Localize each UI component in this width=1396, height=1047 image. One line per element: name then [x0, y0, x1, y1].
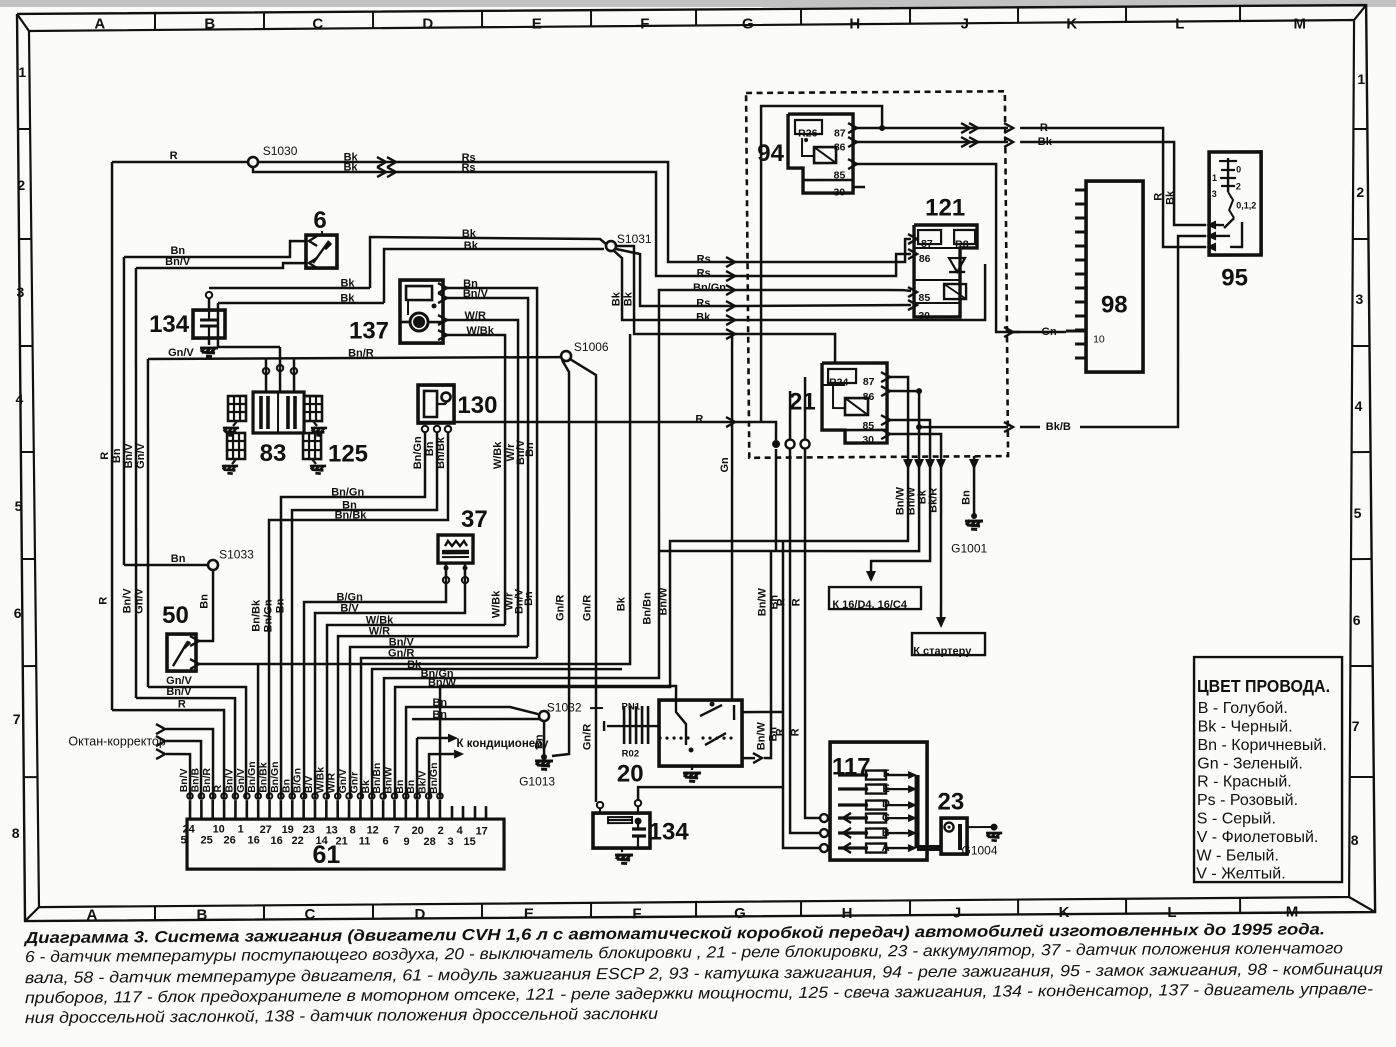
svg-text:Bk: Bk — [696, 312, 711, 324]
svg-text:16: 16 — [270, 835, 282, 847]
svg-text:B: B — [882, 827, 890, 839]
svg-text:S1032: S1032 — [547, 701, 582, 715]
svg-text:Bn/W: Bn/W — [428, 677, 457, 689]
svg-text:A: A — [94, 16, 105, 33]
svg-text:4: 4 — [1355, 398, 1363, 414]
svg-text:20: 20 — [412, 825, 424, 837]
svg-text:5: 5 — [15, 498, 23, 514]
svg-text:W/Bk: W/Bk — [492, 441, 504, 469]
svg-text:6: 6 — [14, 605, 22, 621]
svg-text:К кондиционеру: К кондиционеру — [457, 738, 550, 750]
svg-text:W/Bk: W/Bk — [466, 325, 494, 337]
svg-text:B: B — [204, 16, 215, 33]
svg-text:87: 87 — [863, 376, 875, 388]
svg-text:30: 30 — [918, 310, 930, 322]
svg-text:K: K — [1059, 904, 1070, 921]
svg-text:87: 87 — [921, 238, 933, 250]
svg-text:R: R — [1152, 193, 1164, 201]
svg-text:0: 0 — [1236, 164, 1241, 174]
svg-text:E: E — [524, 906, 534, 923]
svg-text:S1030: S1030 — [263, 144, 298, 158]
svg-text:R: R — [170, 150, 178, 162]
svg-text:G: G — [734, 905, 746, 922]
svg-text:Bn/Bk: Bn/Bk — [251, 599, 263, 632]
svg-text:Ps - Розовый.: Ps - Розовый. — [1197, 792, 1298, 809]
svg-text:M: M — [1286, 904, 1299, 921]
svg-text:Bn/Gn: Bn/Gn — [269, 761, 281, 793]
svg-text:F: F — [632, 905, 641, 922]
svg-text:Bn/Gn: Bn/Gn — [693, 282, 726, 294]
svg-text:R: R — [99, 452, 111, 460]
svg-text:H: H — [849, 16, 860, 33]
svg-text:Bk: Bk — [340, 292, 355, 304]
svg-text:A: A — [86, 907, 97, 924]
svg-text:Bn/B: Bn/B — [189, 767, 201, 792]
svg-text:21: 21 — [335, 835, 347, 847]
svg-text:Bk: Bk — [340, 277, 355, 289]
svg-text:5: 5 — [181, 834, 187, 846]
svg-text:Bk/B: Bk/B — [1046, 421, 1071, 433]
svg-text:G1001: G1001 — [951, 542, 987, 556]
svg-text:Bn/Bk: Bn/Bk — [258, 762, 270, 792]
svg-text:Bn/Gn: Bn/Gn — [428, 763, 440, 795]
svg-text:Bk: Bk — [1038, 136, 1053, 148]
svg-text:Bk: Bk — [360, 780, 372, 794]
svg-text:Rs: Rs — [696, 298, 710, 310]
svg-text:Gn/R: Gn/R — [582, 595, 594, 621]
svg-text:H: H — [842, 905, 853, 922]
svg-text:К 16/D4, 16/C4: К 16/D4, 16/C4 — [832, 599, 907, 611]
svg-text:8: 8 — [350, 824, 356, 836]
svg-text:1: 1 — [238, 824, 244, 836]
svg-text:S1006: S1006 — [574, 340, 609, 354]
svg-text:1: 1 — [18, 64, 26, 80]
svg-text:3: 3 — [17, 284, 25, 300]
svg-text:Gn/V: Gn/V — [235, 768, 247, 793]
svg-text:86: 86 — [919, 253, 931, 265]
svg-text:Bn/Bk: Bn/Bk — [435, 436, 447, 469]
svg-text:8: 8 — [1351, 832, 1359, 848]
svg-text:2: 2 — [438, 825, 444, 837]
svg-text:134: 134 — [649, 819, 690, 846]
svg-text:M: M — [1294, 16, 1307, 33]
svg-text:Bn: Bn — [961, 490, 973, 505]
svg-text:W/R: W/R — [369, 626, 390, 638]
svg-text:R: R — [212, 785, 224, 793]
svg-text:B/Gn: B/Gn — [292, 768, 304, 793]
svg-text:121: 121 — [925, 194, 965, 221]
svg-text:87: 87 — [834, 128, 846, 140]
svg-text:Bk: Bk — [1164, 190, 1176, 205]
svg-text:1: 1 — [1357, 71, 1365, 87]
svg-text:Bn/Bk: Bn/Bk — [335, 509, 368, 521]
svg-text:L: L — [1175, 16, 1184, 33]
svg-text:Bn: Bn — [275, 598, 287, 613]
svg-text:83: 83 — [260, 440, 287, 467]
svg-text:R: R — [1040, 122, 1048, 134]
svg-text:K: K — [1066, 16, 1077, 33]
svg-text:Bn: Bn — [523, 591, 535, 606]
svg-text:R: R — [775, 728, 787, 736]
svg-text:Gn/V: Gn/V — [337, 769, 349, 794]
svg-text:Bk/V: Bk/V — [417, 771, 429, 794]
svg-text:Bn/R: Bn/R — [201, 768, 213, 793]
svg-text:10: 10 — [1093, 333, 1105, 345]
svg-text:V - Желтый.: V - Желтый. — [1196, 866, 1285, 883]
svg-text:Gn/r: Gn/r — [348, 772, 360, 794]
svg-text:Bn/V: Bn/V — [224, 769, 236, 793]
svg-text:F: F — [883, 768, 890, 780]
svg-text:К стартеру: К стартеру — [913, 645, 972, 657]
svg-text:37: 37 — [461, 506, 488, 533]
svg-text:G: G — [742, 16, 754, 33]
svg-text:21: 21 — [789, 388, 816, 415]
svg-text:R: R — [790, 728, 802, 736]
svg-text:Bn/V: Bn/V — [178, 768, 190, 792]
svg-text:S1031: S1031 — [617, 232, 652, 246]
svg-text:Gn/V: Gn/V — [134, 588, 146, 614]
svg-text:Bn/Gn: Bn/Gn — [412, 436, 424, 469]
svg-text:17: 17 — [476, 825, 488, 837]
svg-text:1: 1 — [1212, 173, 1217, 183]
svg-text:D: D — [422, 16, 433, 33]
svg-text:Rs: Rs — [697, 254, 711, 266]
svg-text:50: 50 — [162, 602, 189, 629]
svg-text:ЦВЕТ ПРОВОДА.: ЦВЕТ ПРОВОДА. — [1197, 676, 1330, 696]
svg-text:5: 5 — [1354, 505, 1362, 521]
svg-text:Bn: Bn — [199, 594, 211, 609]
svg-text:Bn: Bn — [111, 448, 123, 463]
svg-text:W - Белый.: W - Белый. — [1197, 847, 1279, 864]
svg-text:Bn/Gn: Bn/Gn — [331, 486, 364, 498]
svg-text:Bn: Bn — [394, 780, 406, 794]
svg-text:W/Bk: W/Bk — [491, 590, 503, 618]
svg-text:R: R — [791, 598, 803, 606]
svg-text:86: 86 — [863, 391, 875, 403]
svg-text:8: 8 — [12, 825, 20, 841]
svg-text:6: 6 — [383, 836, 389, 848]
svg-text:7: 7 — [13, 711, 21, 727]
svg-text:11: 11 — [359, 836, 371, 848]
svg-text:R8: R8 — [955, 239, 969, 251]
svg-text:2: 2 — [17, 177, 25, 193]
svg-text:G1004: G1004 — [961, 844, 997, 858]
svg-text:3: 3 — [448, 836, 454, 848]
svg-text:30: 30 — [833, 187, 845, 199]
svg-text:W/R: W/R — [326, 772, 338, 793]
svg-text:B: B — [196, 906, 207, 923]
svg-text:Bn: Bn — [524, 442, 536, 457]
svg-text:Bn/V: Bn/V — [123, 443, 135, 469]
svg-text:30: 30 — [862, 434, 874, 446]
svg-text:2: 2 — [1236, 181, 1241, 191]
svg-text:Bk: Bk — [462, 228, 477, 240]
svg-text:Bk: Bk — [610, 291, 622, 306]
svg-text:98: 98 — [1101, 292, 1128, 319]
svg-text:R: R — [776, 598, 788, 606]
svg-text:Bn/V: Bn/V — [165, 256, 191, 268]
svg-text:E: E — [532, 16, 542, 33]
svg-text:Октан-корректор: Октан-корректор — [68, 735, 165, 749]
svg-text:85: 85 — [862, 420, 874, 432]
svg-text:86: 86 — [834, 142, 846, 154]
svg-text:Bn: Bn — [171, 553, 186, 565]
svg-text:D: D — [414, 906, 425, 923]
svg-text:7: 7 — [1352, 718, 1360, 734]
svg-text:Bn/V: Bn/V — [122, 588, 134, 614]
svg-text:Bn/R: Bn/R — [348, 347, 374, 359]
svg-text:Bn/W: Bn/W — [756, 722, 768, 751]
svg-text:28: 28 — [423, 836, 435, 848]
svg-text:D: D — [882, 798, 890, 810]
svg-text:6: 6 — [1353, 612, 1361, 628]
svg-text:Gn: Gn — [1041, 326, 1057, 338]
svg-text:R26: R26 — [798, 127, 817, 139]
svg-text:7: 7 — [394, 825, 400, 837]
svg-text:Gn: Gn — [719, 457, 731, 473]
svg-text:23: 23 — [303, 824, 315, 836]
svg-text:Bn/W: Bn/W — [383, 767, 395, 794]
svg-text:S - Серый.: S - Серый. — [1197, 811, 1276, 828]
svg-text:Gn/R: Gn/R — [555, 595, 567, 621]
svg-text:Bk: Bk — [343, 161, 358, 173]
svg-text:14: 14 — [315, 835, 328, 847]
svg-text:V - Фиолетовый.: V - Фиолетовый. — [1197, 829, 1319, 846]
svg-text:85: 85 — [834, 170, 846, 182]
svg-text:E: E — [882, 783, 889, 795]
svg-text:Bn: Bn — [432, 697, 447, 709]
svg-text:L: L — [1167, 904, 1176, 921]
svg-text:C: C — [312, 16, 323, 33]
svg-text:137: 137 — [349, 318, 389, 345]
svg-text:20: 20 — [617, 760, 644, 787]
svg-text:B/V: B/V — [303, 776, 315, 794]
svg-text:9: 9 — [404, 836, 410, 848]
svg-text:Bn - Коричневый.: Bn - Коричневый. — [1198, 737, 1327, 754]
svg-text:85: 85 — [919, 292, 931, 304]
svg-text:R02: R02 — [622, 748, 639, 759]
svg-text:25: 25 — [200, 834, 212, 846]
svg-text:R: R — [178, 698, 186, 710]
svg-text:Bn: Bn — [432, 709, 447, 721]
svg-text:Bk: Bk — [622, 291, 634, 306]
svg-text:Bn/Bn: Bn/Bn — [371, 763, 383, 794]
svg-text:R: R — [98, 597, 110, 605]
svg-text:16: 16 — [247, 835, 259, 847]
svg-text:Bn/V: Bn/V — [463, 288, 489, 300]
svg-text:Bk: Bk — [464, 240, 479, 252]
svg-text:C: C — [882, 812, 890, 824]
svg-text:Bn/Gn: Bn/Gn — [246, 761, 258, 793]
svg-text:125: 125 — [328, 440, 368, 467]
svg-text:A: A — [882, 842, 890, 854]
svg-text:Bn/W: Bn/W — [757, 588, 769, 617]
svg-text:Rs: Rs — [697, 268, 711, 280]
svg-text:22: 22 — [291, 835, 303, 847]
svg-text:15: 15 — [463, 836, 475, 848]
svg-text:Bn/W: Bn/W — [658, 587, 670, 616]
svg-text:C: C — [304, 906, 315, 923]
svg-text:Bk - Черный.: Bk - Черный. — [1198, 719, 1293, 736]
svg-text:Bn: Bn — [280, 779, 292, 793]
svg-text:6: 6 — [313, 207, 326, 234]
svg-text:Bn: Bn — [405, 780, 417, 794]
svg-text:W/R: W/R — [465, 310, 486, 322]
svg-text:3: 3 — [1356, 291, 1364, 307]
svg-text:R: R — [695, 414, 703, 426]
svg-text:S1033: S1033 — [219, 548, 254, 562]
svg-text:Gn/V: Gn/V — [135, 443, 147, 469]
svg-text:4: 4 — [16, 391, 24, 407]
svg-text:W/Bk: W/Bk — [314, 767, 326, 793]
svg-text:Gn/R: Gn/R — [582, 724, 594, 750]
svg-text:Bn/V: Bn/V — [166, 686, 192, 698]
svg-text:Rs: Rs — [461, 162, 475, 174]
svg-text:Bn/Bn: Bn/Bn — [642, 592, 654, 625]
svg-text:95: 95 — [1221, 264, 1248, 291]
svg-text:J: J — [961, 16, 969, 33]
svg-text:J: J — [953, 905, 961, 922]
svg-text:130: 130 — [457, 392, 497, 419]
svg-text:94: 94 — [757, 140, 784, 167]
svg-text:PN1: PN1 — [622, 701, 641, 712]
svg-text:R - Красный.: R - Красный. — [1197, 774, 1292, 791]
svg-text:Bk: Bk — [616, 596, 628, 611]
svg-text:Bn/Gn: Bn/Gn — [263, 599, 275, 632]
svg-text:2: 2 — [1356, 184, 1364, 200]
svg-text:Gn/V: Gn/V — [168, 347, 194, 359]
svg-text:R24: R24 — [829, 377, 848, 389]
svg-text:B/V: B/V — [340, 602, 359, 614]
svg-text:134: 134 — [149, 311, 190, 338]
svg-text:F: F — [640, 16, 649, 33]
svg-text:Bk/R: Bk/R — [928, 488, 940, 513]
svg-text:117: 117 — [832, 754, 871, 781]
svg-text:3: 3 — [1212, 189, 1217, 199]
svg-text:Gn - Зеленый.: Gn - Зеленый. — [1197, 755, 1303, 772]
svg-text:0,1,2: 0,1,2 — [1236, 200, 1256, 210]
svg-text:B - Голубой.: B - Голубой. — [1198, 700, 1288, 717]
svg-text:26: 26 — [223, 835, 235, 847]
svg-text:G1013: G1013 — [519, 775, 555, 789]
svg-text:23: 23 — [938, 788, 965, 815]
